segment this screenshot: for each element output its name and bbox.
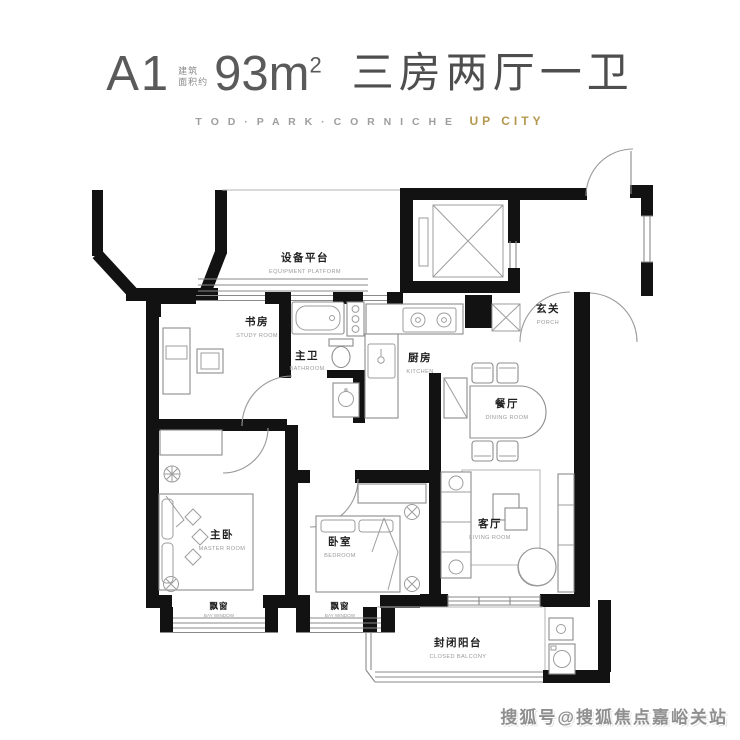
- label-balcony-en: CLOSED BALCONY: [430, 654, 487, 660]
- floorplan-page: A1 建筑 面积约 93m2 三房两厅一卫 T O D · P A R K · …: [0, 0, 740, 740]
- label-equipment-cn: 设备平台: [281, 251, 329, 264]
- label-bedroom-en: BEDROOM: [324, 553, 356, 559]
- label-living-en: LIVING ROOM: [469, 535, 511, 541]
- label-dining-en: DINING ROOM: [486, 415, 529, 421]
- label-equipment-en: EQUIPMENT PLATFORM: [269, 269, 341, 275]
- balcony-fixtures: [549, 618, 575, 674]
- master-bedroom-furniture: [159, 430, 253, 592]
- label-porch-en: PORCH: [537, 320, 559, 326]
- plant-icon: [405, 577, 420, 592]
- label-porch-cn: 玄关: [536, 302, 560, 315]
- label-master-en: MASTER ROOM: [199, 546, 246, 552]
- label-bath-en: BATHROOM: [289, 366, 324, 372]
- plant-icon: [405, 505, 420, 520]
- label-master-cn: 主卧: [210, 528, 234, 541]
- study-furniture: [163, 328, 223, 394]
- watermark: 搜狐号@搜狐焦点嘉峪关站: [500, 703, 728, 728]
- label-balcony-cn: 封闭阳台: [434, 636, 482, 649]
- label-bay1-cn: 飘窗: [209, 601, 228, 611]
- dining-furniture: [470, 363, 546, 461]
- label-bay2-en: BAY WINDOW: [325, 613, 356, 618]
- label-study-en: STUDY ROOM: [236, 333, 278, 339]
- living-room-furniture: [441, 470, 574, 592]
- label-bath-cn: 主卫: [295, 349, 319, 362]
- label-study-cn: 书房: [245, 315, 269, 328]
- label-living-cn: 客厅: [477, 517, 502, 530]
- plant-icon: [164, 466, 180, 482]
- label-kitchen-en: KITCHEN: [406, 369, 433, 375]
- label-bay1-en: BAY WINDOW: [204, 613, 235, 618]
- label-bay2-cn: 飘窗: [330, 601, 349, 611]
- label-bedroom-cn: 卧室: [328, 535, 352, 548]
- floor-plan: 设备平台 EQUIPMENT PLATFORM 书房 STUDY ROOM 主卫…: [0, 0, 740, 740]
- label-dining-cn: 餐厅: [494, 397, 519, 410]
- label-kitchen-cn: 厨房: [408, 351, 432, 364]
